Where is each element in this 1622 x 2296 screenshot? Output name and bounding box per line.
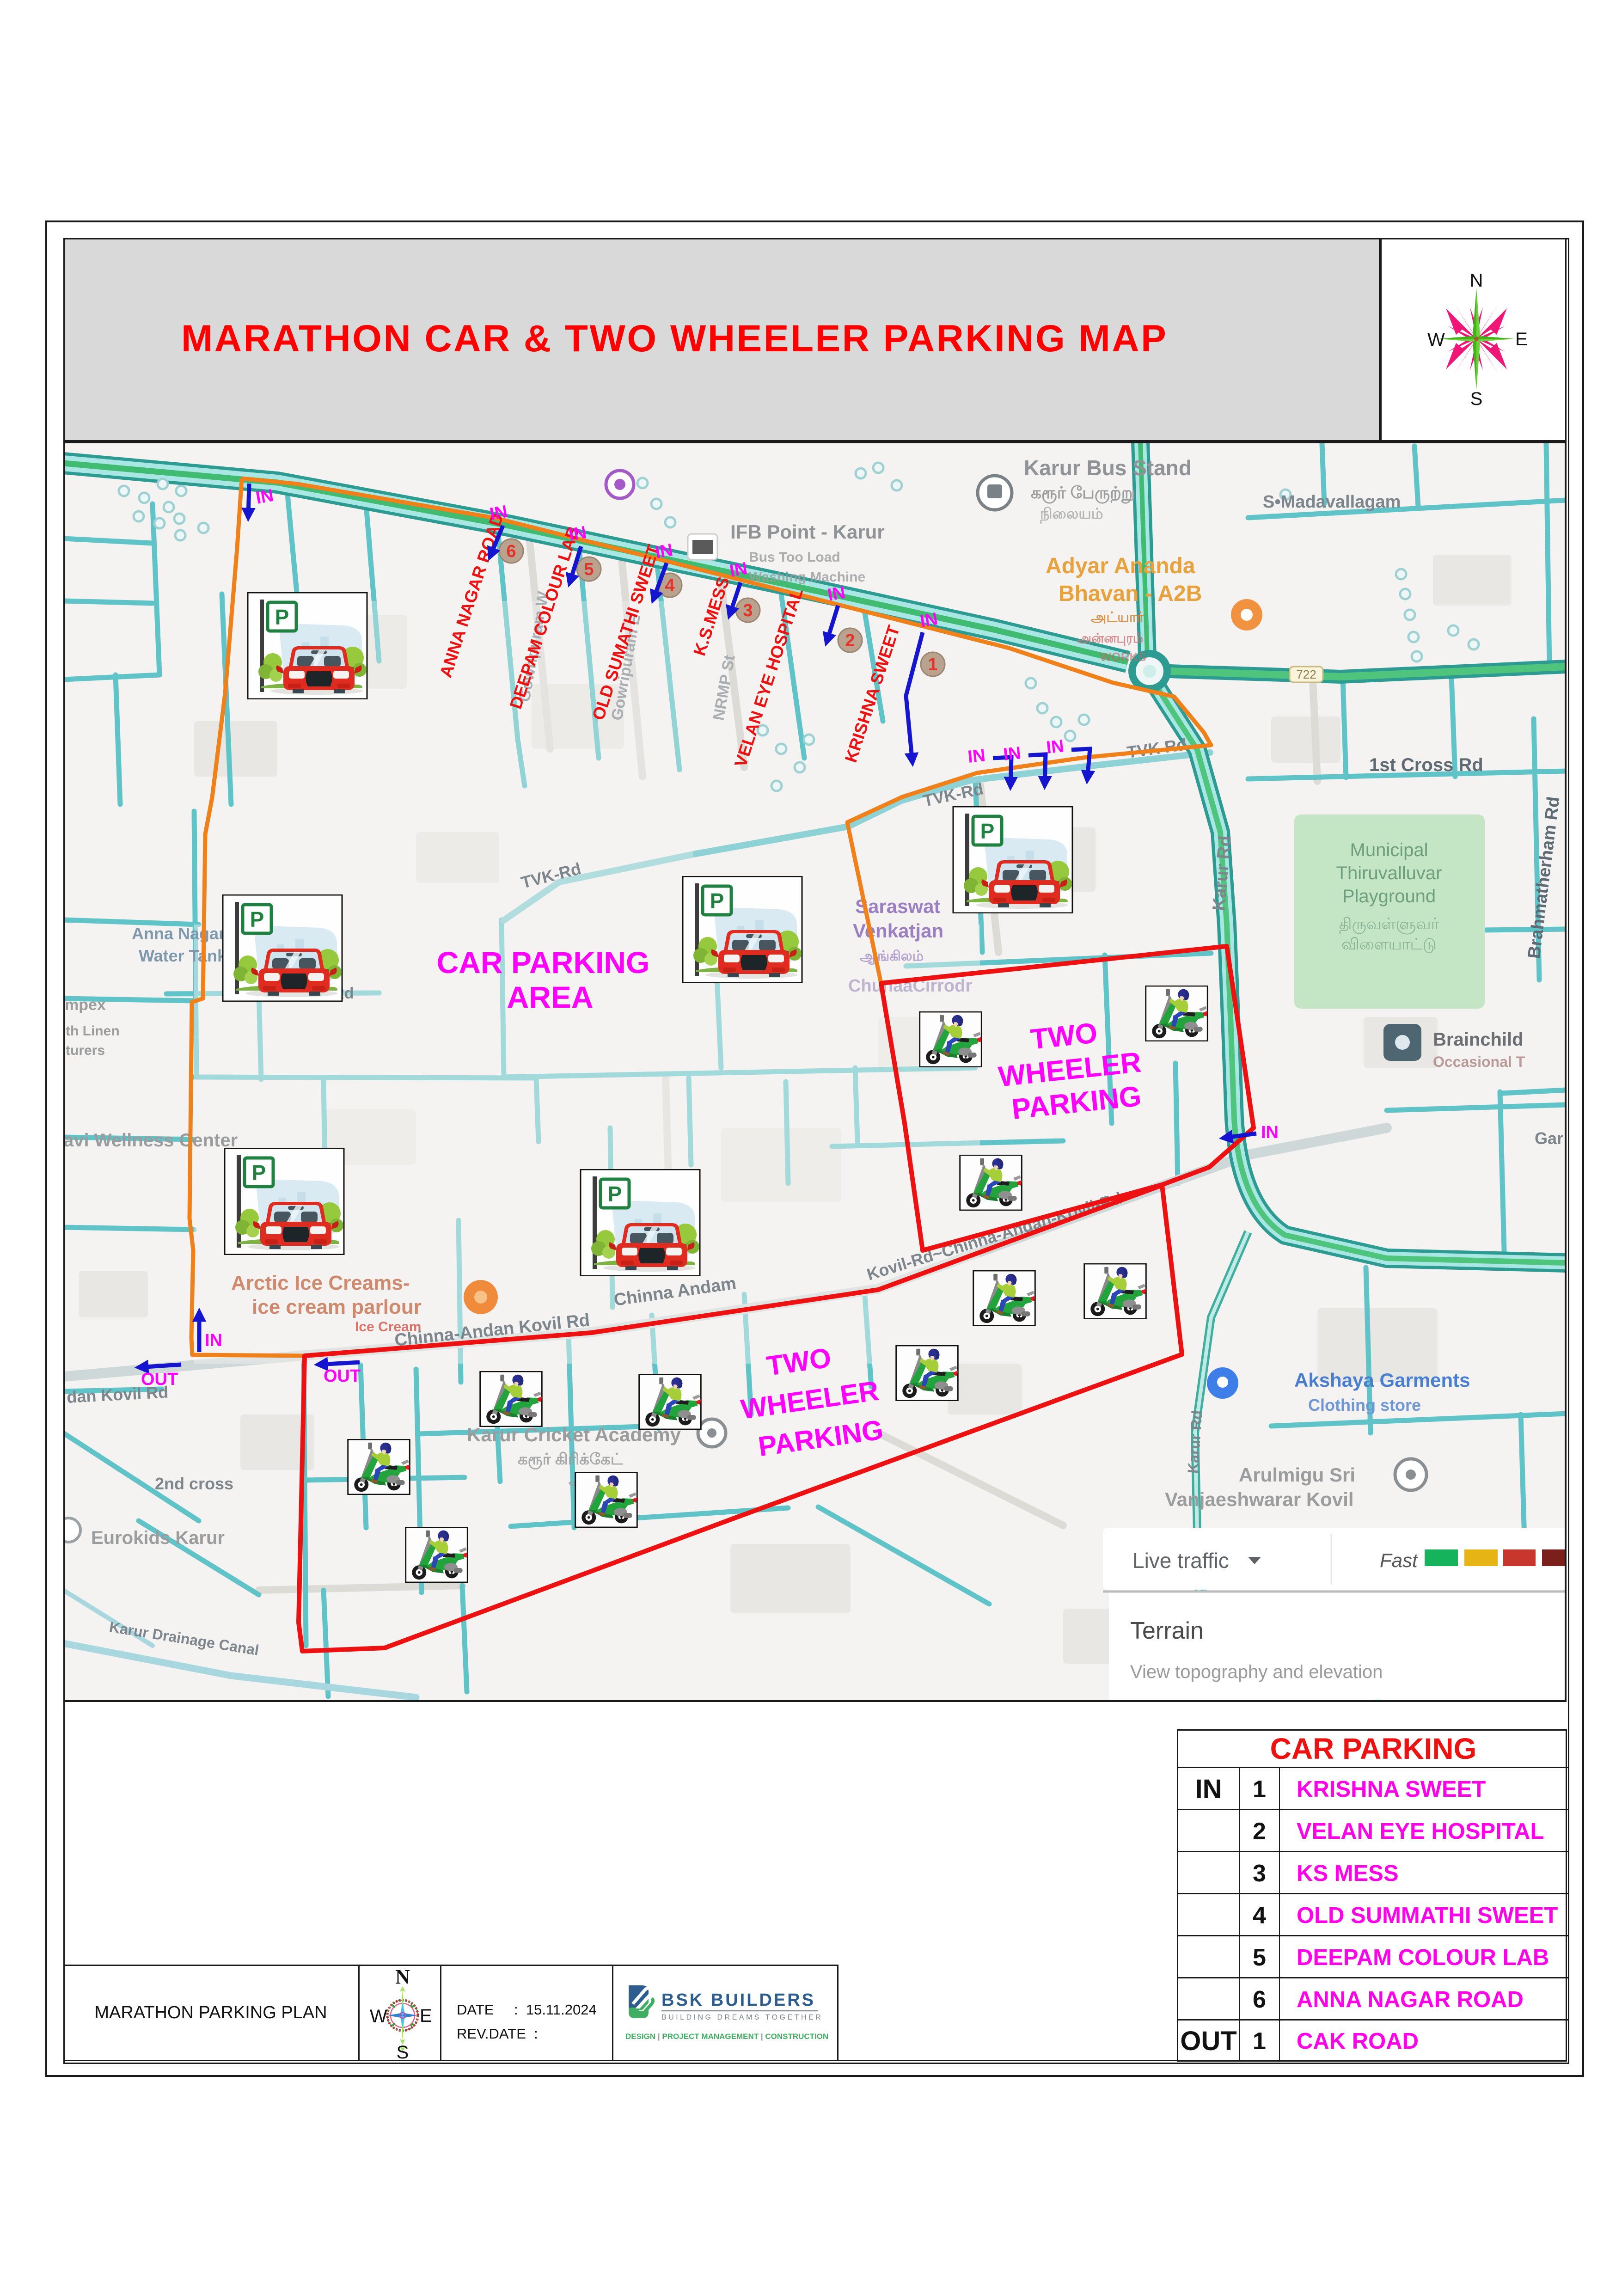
svg-text:WORKS: WORKS	[1100, 650, 1146, 664]
svg-text:Clothing store: Clothing store	[1308, 1396, 1421, 1414]
svg-text:th Linen: th Linen	[66, 1023, 120, 1039]
svg-text:அன்னபுரம்: அன்னபுரம்	[1077, 631, 1143, 646]
svg-text:AREA: AREA	[507, 980, 593, 1014]
svg-text:Arulmigu Sri: Arulmigu Sri	[1239, 1464, 1355, 1486]
svg-text:Terrain: Terrain	[1130, 1617, 1204, 1644]
svg-text:Adyar Ananda: Adyar Ananda	[1046, 554, 1195, 578]
svg-text:Brainchild: Brainchild	[1433, 1029, 1524, 1050]
svg-text:mpex: mpex	[65, 996, 106, 1014]
svg-text:IN: IN	[728, 559, 749, 581]
svg-text:IN: IN	[918, 609, 939, 631]
svg-text:ஆங்கிலம்: ஆங்கிலம்	[860, 949, 924, 965]
svg-text:திருவள்ளுவர்: திருவள்ளுவர்	[1339, 915, 1439, 934]
svg-text:கரூர் பேருற்று: கரூர் பேருற்று	[1031, 483, 1135, 504]
svg-text:2nd cross: 2nd cross	[155, 1474, 233, 1493]
svg-text:S•Madavallagam: S•Madavallagam	[1263, 492, 1401, 512]
svg-text:IN: IN	[567, 523, 588, 545]
svg-text:avi Wellness Center: avi Wellness Center	[63, 1130, 238, 1151]
svg-text:Municipal: Municipal	[1350, 840, 1428, 860]
svg-text:IN: IN	[254, 486, 275, 508]
svg-text:OUT: OUT	[141, 1370, 178, 1389]
svg-text:Water Tank: Water Tank	[139, 946, 227, 965]
svg-text:Vanjaeshwarar Kovil: Vanjaeshwarar Kovil	[1165, 1488, 1354, 1510]
svg-text:Akshaya Garments: Akshaya Garments	[1294, 1369, 1470, 1391]
svg-text:விளையாட்டு: விளையாட்டு	[1341, 936, 1437, 953]
svg-text:IN: IN	[1003, 743, 1022, 765]
svg-text:BUILDING DREAMS TOGETHER: BUILDING DREAMS TOGETHER	[661, 2014, 823, 2021]
svg-text:N: N	[395, 1966, 410, 1988]
svg-text:CAR PARKING: CAR PARKING	[437, 945, 650, 980]
svg-text:S: S	[397, 2042, 409, 2060]
svg-text:View topography and elevation: View topography and elevation	[1130, 1662, 1383, 1682]
svg-text:கரூர் கிரிக்கேட்: கரூர் கிரிக்கேட்	[518, 1451, 624, 1469]
svg-text:Karur Bus Stand: Karur Bus Stand	[1024, 456, 1192, 480]
svg-text:Arctic Ice Creams-: Arctic Ice Creams-	[231, 1272, 410, 1294]
svg-text:E: E	[420, 2006, 432, 2026]
svg-text:அட்யார்: அட்யார்	[1091, 610, 1145, 625]
svg-text:BSK BUILDERS: BSK BUILDERS	[661, 1990, 815, 2010]
svg-text:S: S	[1470, 389, 1483, 409]
svg-text:Fast: Fast	[1380, 1549, 1419, 1571]
svg-text:3: 3	[743, 601, 753, 620]
svg-text:2: 2	[845, 631, 855, 650]
svg-text:Bhavan - A2B: Bhavan - A2B	[1059, 582, 1202, 606]
svg-text:6: 6	[506, 542, 516, 561]
svg-text:நிலையம்: நிலையம்	[1040, 505, 1103, 524]
svg-text:IFB Point - Karur: IFB Point - Karur	[730, 521, 885, 543]
svg-text:OUT: OUT	[324, 1366, 361, 1386]
svg-text:Playground: Playground	[1342, 886, 1436, 906]
svg-text:1: 1	[928, 655, 937, 674]
svg-text:turers: turers	[66, 1043, 105, 1058]
svg-text:IN: IN	[488, 502, 509, 524]
svg-text:722: 722	[1296, 667, 1316, 681]
svg-text:Occasional T: Occasional T	[1433, 1053, 1525, 1070]
svg-text:Eurokids Karur: Eurokids Karur	[91, 1528, 225, 1548]
svg-text:Washing Machine: Washing Machine	[749, 569, 865, 585]
svg-text:IN: IN	[826, 583, 847, 605]
svg-text:Thiruvalluvar: Thiruvalluvar	[1336, 863, 1442, 883]
svg-text:IN: IN	[967, 746, 986, 767]
svg-text:N: N	[1470, 270, 1483, 291]
svg-text:DESIGN | PROJECT MANAGEMENT |: DESIGN | PROJECT MANAGEMENT | CONSTRUCTI…	[625, 2032, 828, 2041]
svg-text:1st Cross Rd: 1st Cross Rd	[1369, 755, 1483, 775]
svg-text:IN: IN	[654, 540, 674, 563]
svg-text:E: E	[1515, 329, 1528, 349]
svg-text:Bus Too Load: Bus Too Load	[749, 550, 840, 565]
svg-text:W: W	[1427, 330, 1445, 350]
svg-text:W: W	[370, 2006, 387, 2027]
svg-text:IN: IN	[205, 1331, 222, 1350]
svg-text:IN: IN	[1046, 736, 1065, 758]
svg-text:5: 5	[584, 560, 594, 579]
svg-text:Gar: Gar	[1535, 1129, 1563, 1148]
svg-text:Anna Nagar: Anna Nagar	[132, 924, 225, 943]
svg-text:ice cream parlour: ice cream parlour	[252, 1296, 422, 1318]
svg-text:IN: IN	[1261, 1123, 1279, 1142]
svg-text:4: 4	[665, 576, 674, 595]
svg-text:Live traffic: Live traffic	[1132, 1549, 1229, 1573]
